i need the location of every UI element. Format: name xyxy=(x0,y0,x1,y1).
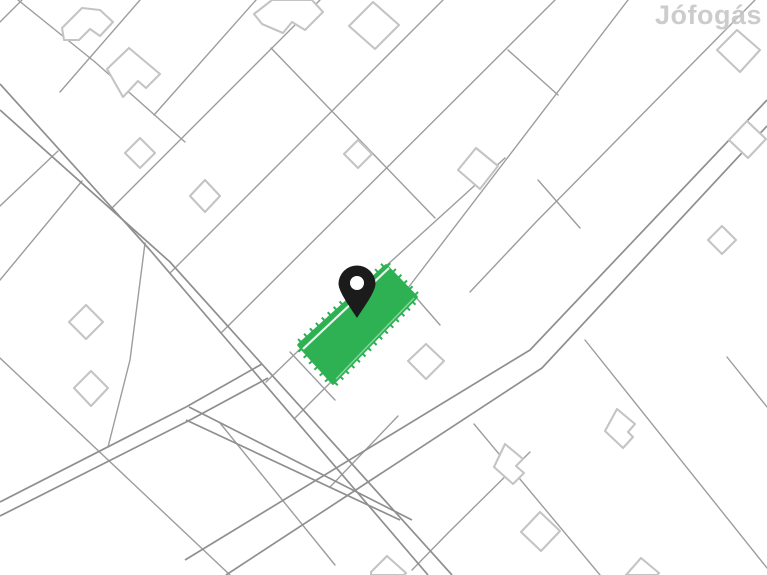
parcel-line xyxy=(108,243,145,447)
building-footprint xyxy=(107,48,160,97)
parcel-line xyxy=(0,151,58,206)
branch-road-west xyxy=(0,378,268,516)
building-footprint xyxy=(717,30,760,72)
parcel-line xyxy=(470,0,755,292)
building-footprint xyxy=(408,344,444,379)
building-footprint xyxy=(125,138,155,168)
building-footprint xyxy=(344,140,372,168)
building-footprint xyxy=(494,444,524,484)
frontage-road xyxy=(189,407,412,520)
frontage-road xyxy=(186,420,400,520)
parcel-line xyxy=(271,48,435,218)
parcel-map[interactable] xyxy=(0,0,767,575)
parcel-line xyxy=(538,180,580,228)
parcel-line xyxy=(408,0,628,288)
parcel-line xyxy=(0,358,230,575)
building-footprint xyxy=(62,8,113,40)
building-footprint xyxy=(605,409,635,448)
building-footprint xyxy=(371,556,406,575)
parcel-line xyxy=(508,50,558,95)
building-footprint xyxy=(190,180,220,212)
building-footprint xyxy=(708,226,736,254)
building-footprint xyxy=(74,371,108,406)
parcel-line xyxy=(474,424,600,575)
pin-hole xyxy=(350,276,364,290)
map-canvas[interactable]: Jófogás xyxy=(0,0,767,575)
building-footprint xyxy=(729,121,766,158)
parcel-line xyxy=(154,0,256,115)
parcel-line xyxy=(0,181,82,280)
parcel-line xyxy=(0,0,22,22)
building-footprint xyxy=(521,512,560,551)
building-footprint xyxy=(458,148,498,189)
building-footprint xyxy=(69,305,103,339)
parcel-line xyxy=(727,357,767,407)
building-footprints xyxy=(62,0,766,575)
jofogas-watermark: Jófogás xyxy=(655,0,762,31)
building-footprint xyxy=(349,2,399,49)
building-footprint xyxy=(254,0,323,33)
parcel-line xyxy=(170,0,443,273)
parcel-line xyxy=(585,340,767,568)
building-footprint xyxy=(626,558,659,575)
